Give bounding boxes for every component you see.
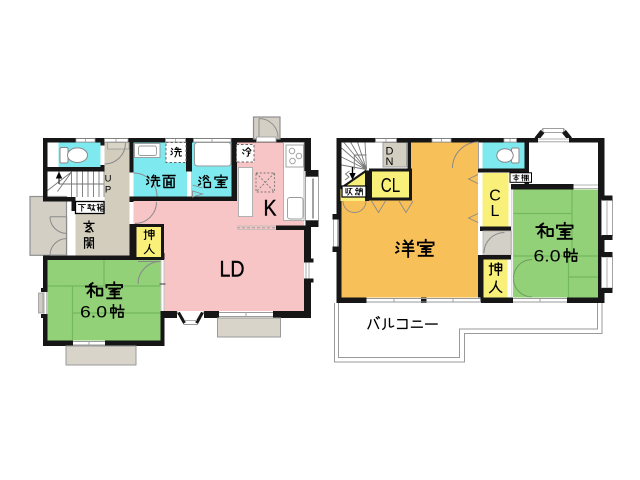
- svg-text:N: N: [386, 156, 394, 168]
- svg-text:LD: LD: [220, 257, 245, 282]
- svg-text:L: L: [491, 203, 500, 220]
- svg-text:6.0: 6.0: [80, 303, 107, 322]
- svg-text:CL: CL: [381, 175, 401, 197]
- svg-text:P: P: [105, 185, 111, 196]
- svg-text:K: K: [264, 196, 277, 221]
- svg-text:C: C: [489, 188, 501, 205]
- svg-text:6.0: 6.0: [534, 247, 561, 266]
- svg-text:U: U: [105, 174, 112, 185]
